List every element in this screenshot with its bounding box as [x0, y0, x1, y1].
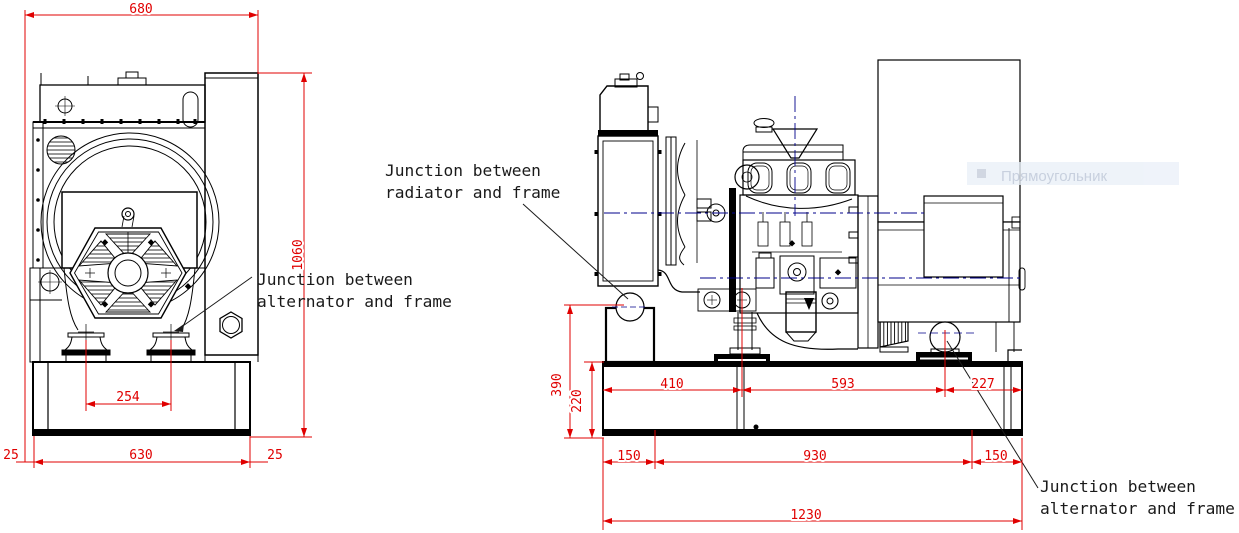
- square-bullet-icon: [977, 169, 986, 178]
- dim-radiator-junction-height: 390: [550, 373, 565, 396]
- base-frame-side: [603, 362, 1022, 435]
- annotation-radiator-frame-line1: Junction between: [385, 161, 541, 180]
- dim-left-overhang: 150: [617, 449, 640, 464]
- channel-bolts: [36, 138, 40, 262]
- genset-engineering-drawing: 680 1060 254 25 630 25 390 220 410 593 2…: [0, 0, 1239, 533]
- tooltip-label: Прямоугольник: [1001, 168, 1107, 185]
- annotation-radiator-frame-line2: radiator and frame: [385, 183, 560, 202]
- cooling-fan-side: [666, 137, 725, 265]
- radiator-cap-front: [118, 78, 146, 85]
- dim-frame-height: 220: [570, 389, 585, 412]
- grille-mesh-circle: [47, 136, 75, 164]
- hex-plug: [220, 312, 242, 338]
- tooltip-overlay: Прямоугольник: [967, 162, 1179, 185]
- leader-radiator-junction: [523, 204, 628, 299]
- annotations: Junction between radiator and frame Junc…: [257, 161, 1235, 518]
- dim-overall-width: 680: [129, 2, 152, 17]
- annotation-alternator-frame-front-line2: alternator and frame: [257, 292, 452, 311]
- dim-left-margin: 25: [3, 448, 19, 463]
- dim-rear-overhang: 227: [971, 377, 994, 392]
- alternator-terminal-box: [924, 196, 1003, 277]
- dim-overall-length: 1230: [790, 508, 821, 523]
- dim-overall-height: 1060: [291, 239, 306, 270]
- front-view-drawing: [30, 72, 258, 435]
- base-frame-front: [33, 362, 250, 435]
- side-view-drawing: [595, 60, 1026, 435]
- dim-right-margin: 25: [267, 448, 283, 463]
- alternator-side: [878, 60, 1025, 365]
- dim-mount-spacing-side: 593: [831, 377, 854, 392]
- dim-mount-spacing-front: 254: [116, 390, 140, 405]
- engine-side: [698, 119, 858, 368]
- drawing-canvas: 680 1060 254 25 630 25 390 220 410 593 2…: [0, 0, 1239, 533]
- radiator-side: [595, 73, 701, 363]
- dim-frame-length: 630: [129, 448, 152, 463]
- dim-skid-mount-spacing: 930: [803, 449, 826, 464]
- flywheel-housing: [849, 196, 878, 348]
- fan-hub-outer: [108, 253, 148, 293]
- annotation-alternator-frame-side-line2: alternator and frame: [1040, 499, 1235, 518]
- annotation-alternator-frame-side-line1: Junction between: [1040, 477, 1196, 496]
- dim-right-overhang: 150: [984, 449, 1007, 464]
- dim-front-mount-offset: 410: [660, 377, 683, 392]
- annotation-alternator-frame-front-line1: Junction between: [257, 270, 413, 289]
